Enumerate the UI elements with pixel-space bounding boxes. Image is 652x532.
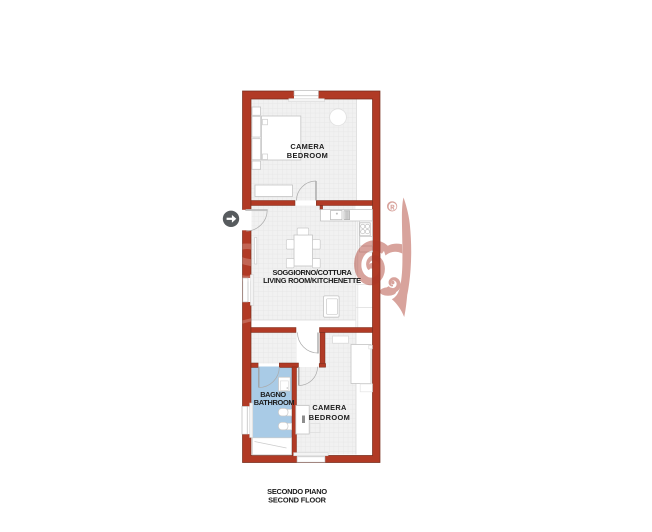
svg-text:BEDROOM: BEDROOM [309, 413, 350, 422]
svg-text:LIVING ROOM/KITCHENETTE: LIVING ROOM/KITCHENETTE [263, 276, 361, 285]
svg-text:BEDROOM: BEDROOM [287, 151, 328, 160]
svg-text:CAMERA: CAMERA [312, 403, 347, 412]
svg-text:BATHROOM: BATHROOM [254, 398, 295, 407]
svg-text:CAMERA: CAMERA [290, 142, 325, 151]
svg-text:SECOND FLOOR: SECOND FLOOR [268, 496, 327, 505]
